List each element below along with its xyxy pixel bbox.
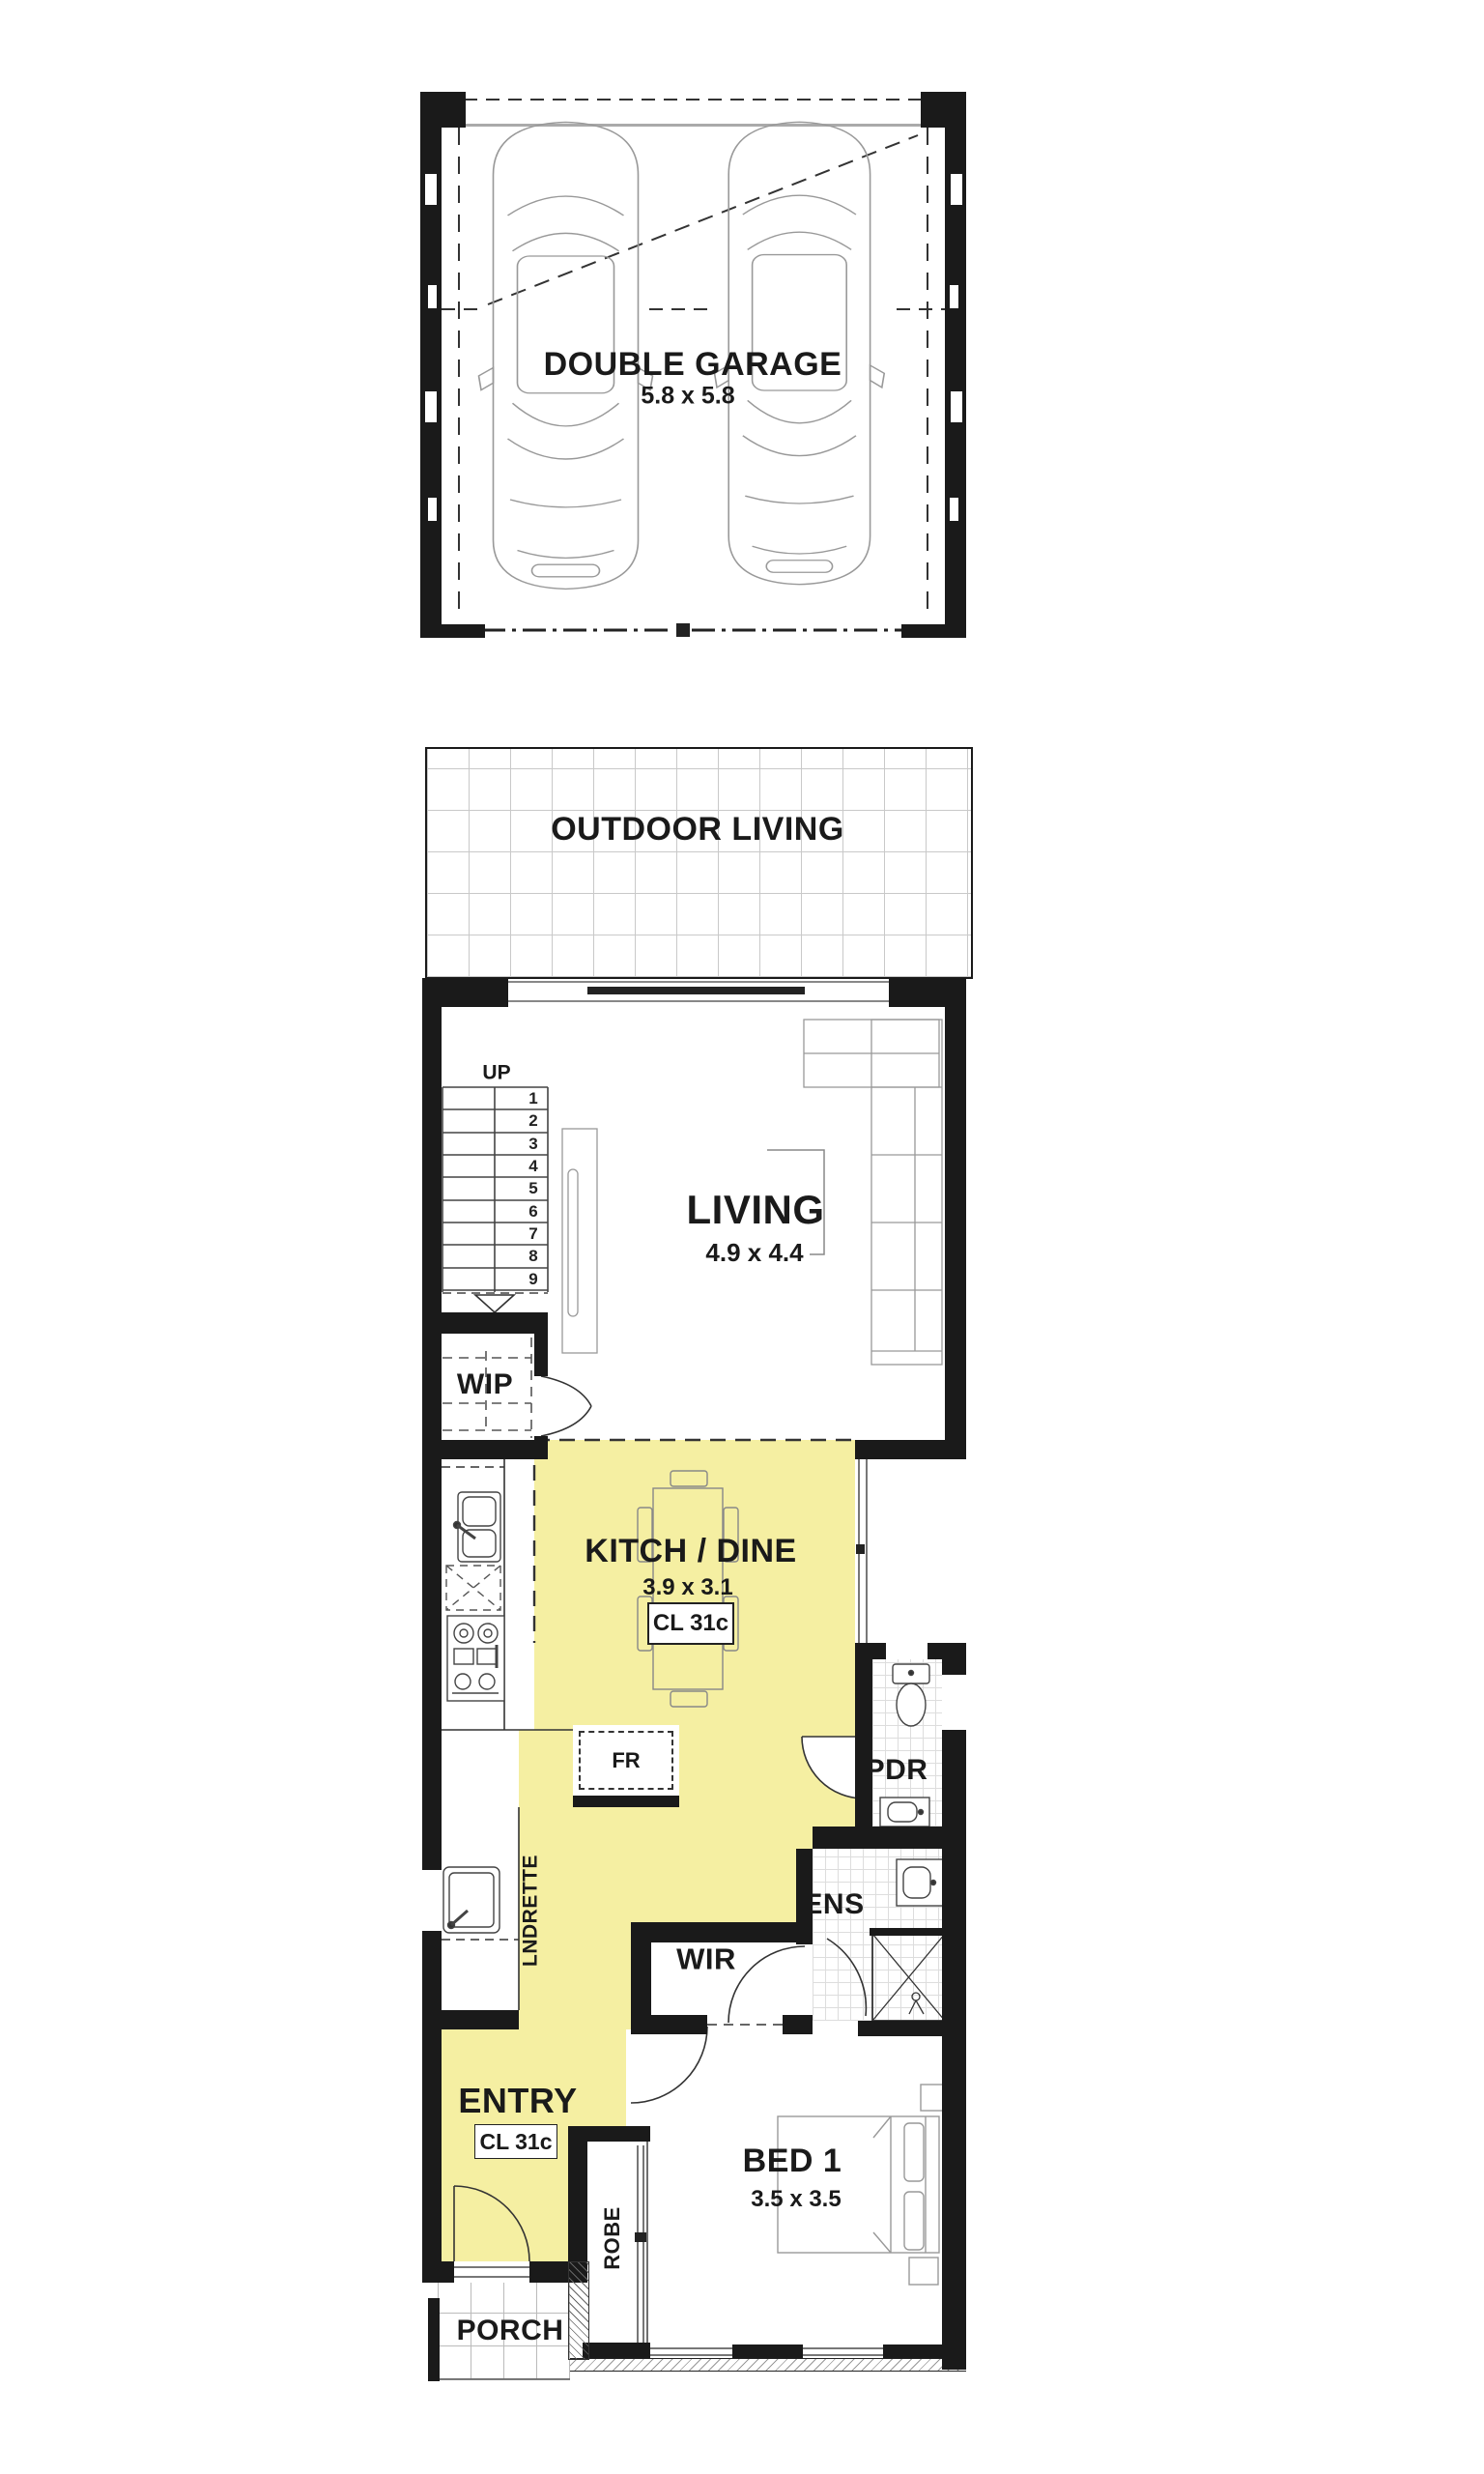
stairs-up-label: UP (482, 1063, 510, 1083)
wall (883, 2345, 966, 2358)
dishwasher (446, 1566, 500, 1610)
window-glazing (426, 1647, 956, 2355)
cooktop (447, 1616, 504, 1701)
kitch-dine-dims: 3.9 x 3.1 (642, 1576, 732, 1599)
stair-number: 7 (525, 1225, 542, 1242)
stair-number: 2 (525, 1112, 542, 1129)
window (422, 1870, 442, 1931)
shower-door (827, 1939, 866, 2016)
stair-number: 1 (525, 1090, 542, 1107)
wall (428, 2298, 440, 2381)
pdr-vanity (880, 1798, 929, 1827)
stair-arrow-icon (475, 1295, 514, 1312)
wall-notch (428, 498, 437, 521)
shower (872, 1934, 945, 2021)
stair-number: 6 (525, 1203, 542, 1220)
garage-label: DOUBLE GARAGE (544, 348, 842, 381)
living-dims: 4.9 x 4.4 (705, 1240, 803, 1265)
bed1-door (631, 2027, 707, 2103)
kitch-ceiling-label: CL 31c (653, 1610, 728, 1637)
tv-unit (562, 1129, 597, 1353)
entry-threshold (454, 2267, 529, 2277)
living-label: LIVING (686, 1190, 824, 1230)
pdr-label: PDR (866, 1756, 928, 1785)
stair-number: 3 (525, 1136, 542, 1152)
wall (783, 2015, 813, 2034)
wall-notch (950, 285, 958, 308)
bed1-dims: 3.5 x 3.5 (751, 2188, 841, 2211)
wall (813, 1827, 966, 1849)
ens-label: ENS (803, 1890, 864, 1919)
wall (422, 1440, 534, 1459)
wall-notch (425, 174, 437, 205)
wall (534, 1334, 548, 1376)
wall (942, 1643, 966, 2370)
wall (422, 1312, 548, 1334)
hatched-pier (568, 2261, 589, 2360)
wall (422, 2010, 519, 2029)
wall-notch (950, 498, 958, 521)
wall (422, 978, 442, 2283)
garage-door-marker (676, 623, 690, 637)
kitch-ceiling-box: CL 31c (647, 1602, 734, 1645)
floor-plan: DOUBLE GARAGE 5.8 x 5.8 OUTDOOR LIVING U… (0, 0, 1484, 2474)
wall (921, 92, 966, 128)
bedside-table (909, 2258, 938, 2285)
wall (631, 2015, 707, 2034)
wall (732, 2345, 803, 2358)
entry-door (454, 2186, 529, 2261)
wall (945, 978, 966, 1440)
wip-label: WIP (457, 1370, 513, 1399)
wall (442, 624, 485, 638)
robe-label: ROBE (602, 2206, 623, 2270)
stair-number: 8 (525, 1248, 542, 1264)
stair-number: 9 (525, 1271, 542, 1287)
wall (858, 2021, 966, 2036)
entry-ceiling-box: CL 31c (474, 2124, 557, 2159)
wall (901, 624, 945, 638)
wall (631, 1922, 808, 1942)
window (942, 1675, 966, 1730)
fridge-label: FR (612, 1750, 640, 1771)
entry-ceiling-label: CL 31c (479, 2129, 552, 2155)
wall (568, 2142, 587, 2261)
laundry-trough (443, 1867, 499, 1933)
wall (568, 2126, 650, 2142)
wall (870, 1928, 945, 1936)
lndrette-label: LNDRETTE (521, 1855, 541, 1967)
kitchen-sink (454, 1492, 501, 1562)
window (886, 1643, 927, 1659)
porch-label: PORCH (457, 2316, 564, 2345)
ens-door (728, 1946, 805, 2023)
stacker-door-panel (587, 987, 805, 994)
bed (778, 2085, 950, 2285)
kitch-dine-label: KITCH / DINE (585, 1535, 796, 1568)
wall-notch (951, 174, 962, 205)
stair-number: 5 (525, 1180, 542, 1196)
wall (422, 2261, 454, 2283)
entry-label: ENTRY (458, 2084, 577, 2118)
bed1-label: BED 1 (743, 2144, 842, 2177)
ens-vanity (897, 1859, 943, 1906)
stair-number: 4 (525, 1158, 542, 1174)
wir-label: WIR (676, 1944, 736, 1974)
wall (583, 2343, 650, 2358)
wall-notch (428, 285, 437, 308)
wall-notch (425, 391, 437, 422)
garage-dims: 5.8 x 5.8 (641, 385, 734, 409)
wall-notch (951, 391, 962, 422)
wall (855, 1440, 966, 1459)
wip-door (541, 1376, 591, 1436)
outdoor-living-label: OUTDOOR LIVING (551, 813, 844, 846)
wall (420, 92, 466, 128)
wall (534, 1436, 548, 1459)
toilet (893, 1664, 929, 1726)
wall (573, 1796, 679, 1807)
